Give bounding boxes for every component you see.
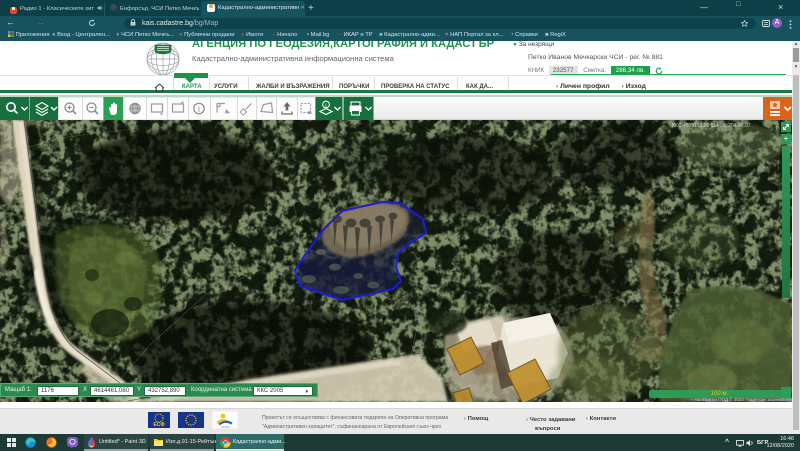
svg-text:МЕРИ ГНС: МЕРИ ГНС	[358, 290, 384, 296]
svg-text:ОПАК: ОПАК	[221, 425, 229, 429]
svg-text:ЕСФ: ЕСФ	[153, 422, 165, 428]
svg-text:ККС 4609198.01 114.99, 204.48.: ККС 4609198.01 114.99, 204.48.97	[672, 123, 751, 129]
